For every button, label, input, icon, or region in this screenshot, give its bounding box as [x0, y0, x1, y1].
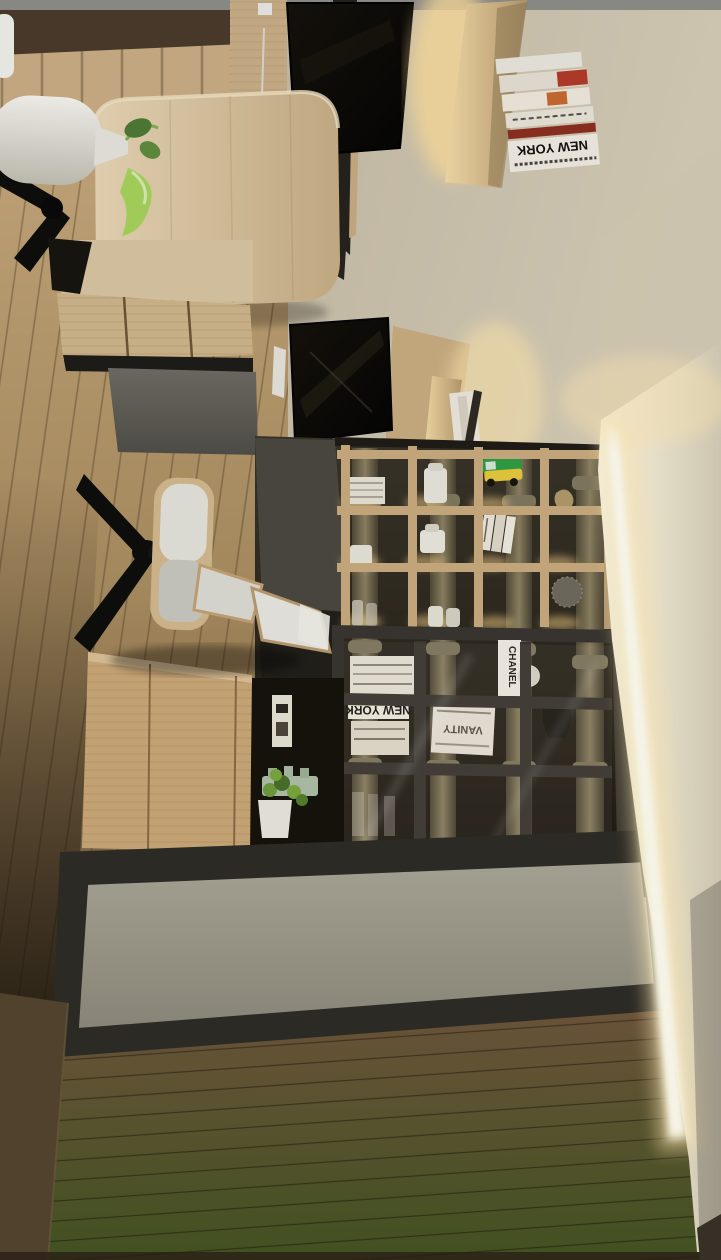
interior-render: NEW YORK	[0, 0, 721, 1260]
vignette	[0, 0, 721, 1260]
render-canvas: NEW YORK	[0, 0, 721, 1260]
